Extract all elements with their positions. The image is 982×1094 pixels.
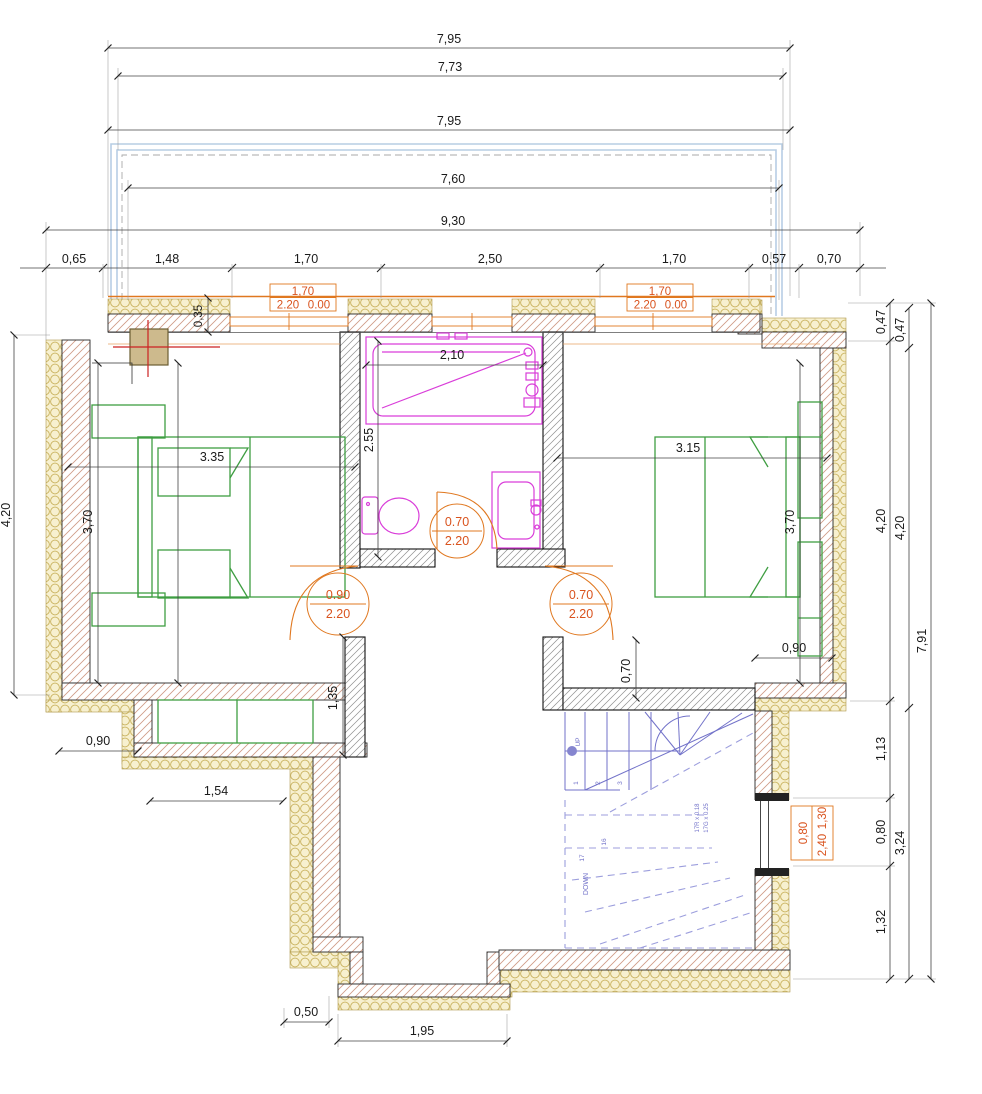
dim-label: 4,20 [0,503,13,527]
dim-label: 0,47 [874,310,888,334]
cabinet-hall [158,700,313,743]
door-height-label: 2.20 [326,607,350,621]
stair-riser-spec: 17R x 0.18 [695,803,701,833]
window-height-label: 2.20 [277,300,299,312]
window-width-label: 0,80 [798,822,810,844]
window-width-label: 1,70 [292,286,314,298]
dim-label: 1,95 [410,1024,434,1038]
dim-label: 2,50 [478,252,502,266]
dim-label: 1,70 [294,252,318,266]
dim-label: 4,20 [893,516,907,540]
dim-label: 7,91 [915,629,929,653]
window-height-label: 2.20 [634,300,656,312]
interior-walls [340,332,755,757]
window-tag-top-right: 1,70 2.20 0.00 [627,284,693,312]
stair-going-spec: 17G x 0.25 [704,803,710,833]
dim-label: 0,65 [62,252,86,266]
sink-vanity [492,472,541,548]
floor-plan-canvas: 1,70 2.20 0.00 1,70 2.20 0.00 0,80 2,40 … [0,0,982,1094]
dim-label: 0,50 [294,1005,318,1019]
dim-label: 9,30 [441,214,465,228]
wardrobe-right-top [798,402,822,518]
stair-up-label: UP [575,737,582,746]
door-bedroom-right: 0.70 2.20 [545,566,613,640]
floor-plan-page: 1,70 2.20 0.00 1,70 2.20 0.00 0,80 2,40 … [0,0,982,1094]
window-top-left-sill [230,313,348,330]
dim-label: 3,24 [893,831,907,855]
window-sill-label: 0.00 [665,300,687,312]
stair-down-label: DOWN [583,873,590,895]
door-height-label: 2.20 [445,534,469,548]
dim-label: 1,35 [326,686,340,710]
door-height-label: 2.20 [569,607,593,621]
dim-label: 1,70 [662,252,686,266]
dim-label: 3.35 [200,450,224,464]
dim-label: 0,70 [817,252,841,266]
stair-step-number: 1 [573,781,580,785]
dim-label: 7,73 [438,60,462,74]
stairs: UP DOWN 1 2 3 17 16 17R x 0.18 17G x 0.2… [565,712,753,948]
dim-label: 1,48 [155,252,179,266]
stair-step-number: 16 [601,838,608,846]
wardrobe-right-bottom [798,542,822,656]
stair-window: 0,80 2,40 1,30 [753,793,833,876]
dim-label: 4,20 [874,509,888,533]
stair-step-number: 2 [595,781,602,785]
bed-right [655,437,800,597]
dim-label: 7,95 [437,32,461,46]
toilet [362,497,419,534]
dim-label: 0,35 [193,305,205,327]
window-width-label: 1,70 [649,286,671,298]
nightstand-left-bottom [92,593,165,626]
doors: 0.90 2.20 0.70 2.20 0.70 2.20 [290,492,613,640]
dim-label: 7,60 [441,172,465,186]
dim-label: 0,90 [86,734,110,748]
door-width-label: 0.70 [569,588,593,602]
dim-label: 7,95 [437,114,461,128]
dim-label: 3.15 [676,441,700,455]
dim-label: 0,47 [893,318,907,342]
door-bedroom-left: 0.90 2.20 [290,566,369,640]
dim-label: 1,54 [204,784,228,798]
window-tag-stair: 0,80 2,40 1,30 [791,806,833,860]
door-bathroom: 0.70 2.20 [430,492,497,558]
dim-label: 1,32 [874,910,888,934]
dim-label: 0,90 [782,641,806,655]
window-height-label: 2,40 [817,834,829,856]
dim-label: 2,10 [440,348,464,362]
window-sill-label: 0.00 [308,300,330,312]
window-tag-top-left: 1,70 2.20 0.00 [270,284,336,312]
door-width-label: 0.70 [445,515,469,529]
stair-step-number: 17 [579,854,586,862]
dim-label: 0,70 [619,659,633,683]
dim-label: 0,57 [762,252,786,266]
door-width-label: 0.90 [326,588,350,602]
dim-label: 0,80 [874,820,888,844]
bed-left [138,437,345,598]
insulation-layer [46,299,846,1010]
dim-label: 2.55 [362,428,376,452]
nightstand-left-top [92,405,165,438]
bathtub [366,333,542,424]
dim-label: 3,70 [783,510,797,534]
window-sill-label: 1,30 [817,807,829,829]
window-top-center-sill [432,313,512,330]
stair-step-number: 3 [617,781,624,785]
dim-label: 1,13 [874,737,888,761]
dim-label: 3,70 [81,510,95,534]
window-top-right-sill [595,313,712,330]
